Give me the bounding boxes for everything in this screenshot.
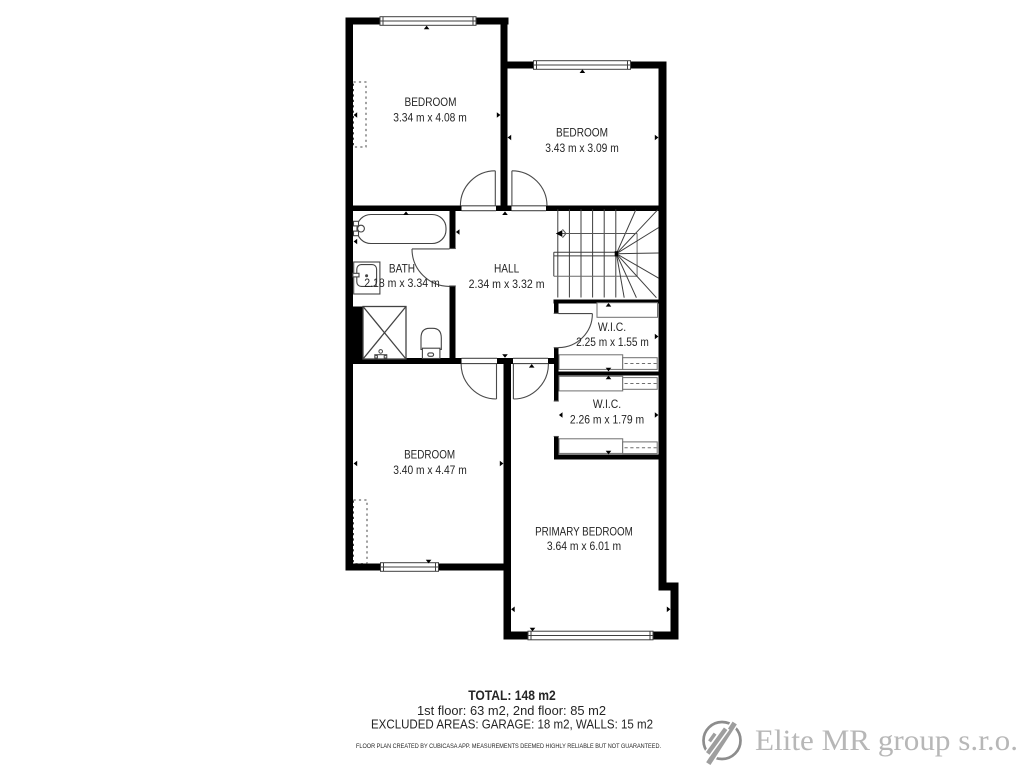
svg-text:TOTAL: 148 m2: TOTAL: 148 m2 — [468, 688, 556, 703]
svg-text:PRIMARY BEDROOM: PRIMARY BEDROOM — [535, 527, 633, 539]
svg-text:3.64 m x 6.01 m: 3.64 m x 6.01 m — [547, 539, 621, 553]
svg-text:BEDROOM: BEDROOM — [556, 128, 608, 140]
svg-text:3.34 m x 4.08 m: 3.34 m x 4.08 m — [393, 110, 467, 124]
svg-text:FLOOR PLAN CREATED BY CUBICASA: FLOOR PLAN CREATED BY CUBICASA APP. MEAS… — [356, 743, 661, 750]
svg-text:2.18 m x 3.34 m: 2.18 m x 3.34 m — [364, 276, 440, 290]
svg-text:W.I.C.: W.I.C. — [598, 322, 626, 334]
svg-text:EXCLUDED AREAS: GARAGE: 18 m2,: EXCLUDED AREAS: GARAGE: 18 m2, WALLS: 15… — [371, 716, 653, 731]
svg-text:3.43 m x 3.09 m: 3.43 m x 3.09 m — [545, 141, 619, 155]
svg-text:2.34 m x 3.32 m: 2.34 m x 3.32 m — [469, 277, 545, 291]
svg-text:BEDROOM: BEDROOM — [404, 449, 455, 461]
svg-text:3.40 m x 4.47 m: 3.40 m x 4.47 m — [393, 463, 467, 477]
svg-text:BATH: BATH — [389, 263, 415, 275]
svg-text:HALL: HALL — [494, 263, 520, 275]
svg-text:2.25 m x 1.55 m: 2.25 m x 1.55 m — [576, 335, 649, 349]
svg-text:2.26 m x 1.79 m: 2.26 m x 1.79 m — [570, 412, 644, 426]
svg-text:Elite MR group s.r.o.: Elite MR group s.r.o. — [755, 725, 1018, 757]
svg-text:W.I.C.: W.I.C. — [593, 399, 621, 411]
svg-text:BEDROOM: BEDROOM — [405, 97, 457, 109]
